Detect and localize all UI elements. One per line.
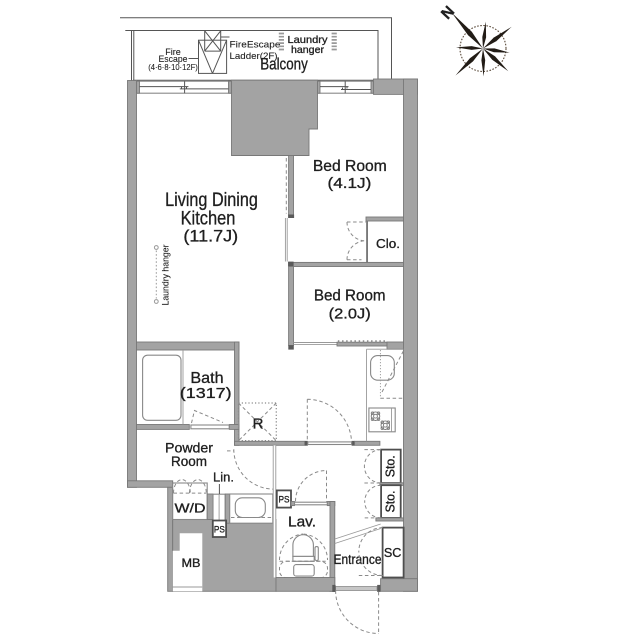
svg-text:N: N <box>438 3 458 23</box>
svg-text:Bed Room: Bed Room <box>314 288 386 305</box>
svg-text:hanger: hanger <box>291 44 324 56</box>
svg-text:(4.1J): (4.1J) <box>328 176 372 192</box>
svg-text:Clo.: Clo. <box>376 237 400 251</box>
svg-text:PS: PS <box>279 495 290 506</box>
svg-text:W/D: W/D <box>175 501 206 516</box>
svg-text:(2.0J): (2.0J) <box>329 307 371 323</box>
svg-text:Sto.: Sto. <box>384 455 398 477</box>
svg-text:PS: PS <box>214 524 225 535</box>
svg-text:Room: Room <box>171 454 207 469</box>
svg-text:Balcony: Balcony <box>260 55 308 73</box>
svg-text:FireEscape: FireEscape <box>230 39 281 50</box>
svg-text:Lin.: Lin. <box>213 470 234 485</box>
svg-text:MB: MB <box>182 558 201 570</box>
svg-text:(1317): (1317) <box>180 385 232 402</box>
svg-text:R: R <box>253 416 264 433</box>
svg-text:(4·6·8·10·12F): (4·6·8·10·12F) <box>148 63 198 72</box>
svg-text:SC: SC <box>384 545 402 560</box>
svg-text:Bed Room: Bed Room <box>313 158 387 175</box>
svg-text:Lav.: Lav. <box>288 514 316 531</box>
svg-text:Entrance: Entrance <box>334 552 382 567</box>
svg-text:(11.7J): (11.7J) <box>183 227 238 246</box>
svg-text:Sto.: Sto. <box>384 491 398 513</box>
svg-text:Laundry hanger: Laundry hanger <box>161 245 172 306</box>
